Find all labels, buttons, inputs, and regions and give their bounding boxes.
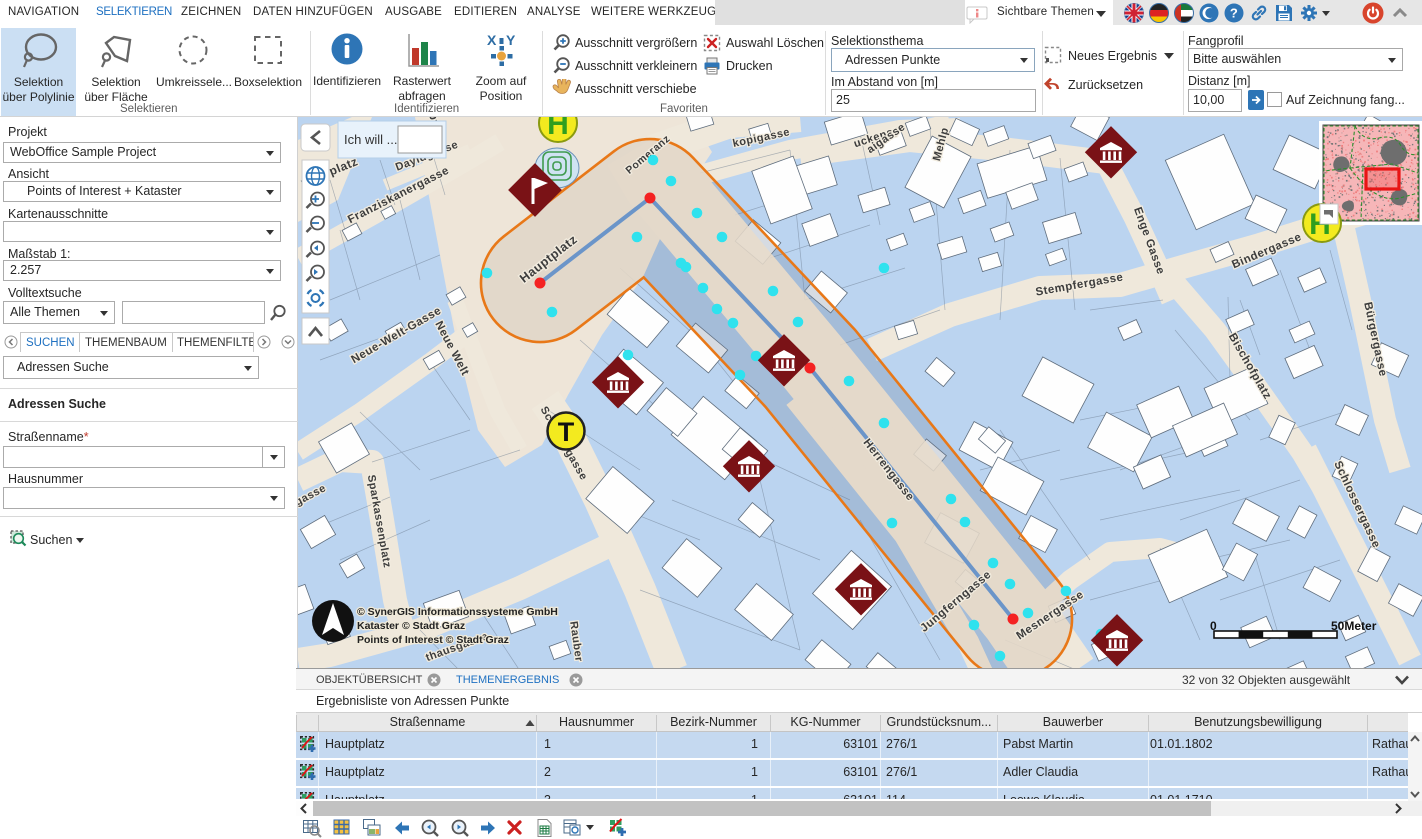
- svg-text:T: T: [558, 417, 575, 447]
- svg-text:Ich will ...: Ich will ...: [344, 132, 397, 147]
- svg-text:50Meter: 50Meter: [1331, 619, 1377, 633]
- svg-text:Kataster © Stadt Graz: Kataster © Stadt Graz: [357, 620, 465, 632]
- svg-text:?: ?: [1230, 6, 1238, 21]
- svg-text:H: H: [547, 117, 569, 141]
- svg-text:© SynerGIS Informationssysteme: © SynerGIS Informationssysteme GmbH: [357, 606, 558, 618]
- svg-text:Points of Interest © Stadt Gra: Points of Interest © Stadt Graz: [357, 634, 509, 646]
- svg-text:X: X: [487, 32, 497, 48]
- svg-text:Y: Y: [506, 32, 516, 48]
